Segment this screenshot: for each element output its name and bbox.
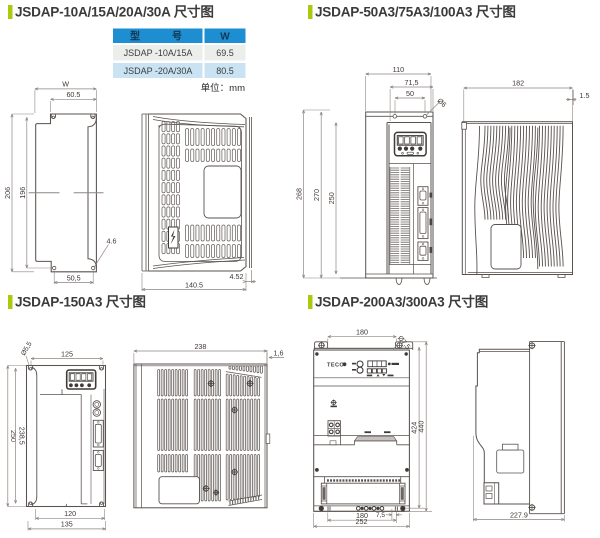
svg-text:252: 252 xyxy=(356,517,368,526)
svg-text:JSDAP-50A3/75A3/100A3 尺寸图: JSDAP-50A3/75A3/100A3 尺寸图 xyxy=(315,4,516,20)
svg-text:80.5: 80.5 xyxy=(216,66,234,76)
svg-text:238,5: 238,5 xyxy=(17,427,26,445)
svg-text:JSDAP-150A3 尺寸图: JSDAP-150A3 尺寸图 xyxy=(15,294,146,310)
svg-text:W: W xyxy=(220,32,230,43)
svg-text:Ø6: Ø6 xyxy=(436,97,448,109)
svg-text:50: 50 xyxy=(406,89,414,98)
svg-text:250: 250 xyxy=(327,192,336,204)
svg-text:206: 206 xyxy=(3,187,12,199)
svg-text:270: 270 xyxy=(312,189,321,201)
svg-text:120: 120 xyxy=(64,509,76,518)
svg-text:JSDAP -10A/15A: JSDAP -10A/15A xyxy=(124,48,193,58)
svg-text:180: 180 xyxy=(356,328,368,337)
svg-text:268: 268 xyxy=(295,188,304,200)
svg-text:135: 135 xyxy=(61,520,73,529)
svg-text:238: 238 xyxy=(194,342,206,351)
svg-text:4.52: 4.52 xyxy=(230,272,244,281)
svg-text:250: 250 xyxy=(9,430,18,442)
svg-text:440: 440 xyxy=(417,421,426,433)
svg-text:50,5: 50,5 xyxy=(67,274,81,283)
svg-text:60.5: 60.5 xyxy=(66,90,80,99)
svg-text:71,5: 71,5 xyxy=(405,78,419,87)
svg-text:Ø5,5: Ø5,5 xyxy=(20,341,34,357)
svg-text:JSDAP-10A/15A/20A/30A 尺寸图: JSDAP-10A/15A/20A/30A 尺寸图 xyxy=(15,4,214,20)
svg-text:号: 号 xyxy=(172,31,182,43)
svg-text:110: 110 xyxy=(393,65,404,74)
svg-text:4.6: 4.6 xyxy=(107,237,117,246)
svg-text:125: 125 xyxy=(61,349,73,358)
svg-text:182: 182 xyxy=(512,78,524,87)
svg-text:JSDAP -20A/30A: JSDAP -20A/30A xyxy=(124,66,193,76)
svg-text:69.5: 69.5 xyxy=(216,48,234,58)
svg-text:1.5: 1.5 xyxy=(580,91,590,100)
svg-text:W: W xyxy=(62,80,69,89)
svg-text:227.9: 227.9 xyxy=(510,510,528,519)
svg-text:196: 196 xyxy=(18,187,27,199)
svg-text:JSDAP-200A3/300A3 尺寸图: JSDAP-200A3/300A3 尺寸图 xyxy=(315,294,488,310)
svg-text:7,5: 7,5 xyxy=(376,512,385,519)
svg-text:1,6: 1,6 xyxy=(274,348,284,357)
svg-text:单位：mm: 单位：mm xyxy=(201,82,245,94)
svg-text:型: 型 xyxy=(130,30,140,43)
svg-text:TECO: TECO xyxy=(327,362,344,368)
svg-text:140.5: 140.5 xyxy=(185,280,203,289)
